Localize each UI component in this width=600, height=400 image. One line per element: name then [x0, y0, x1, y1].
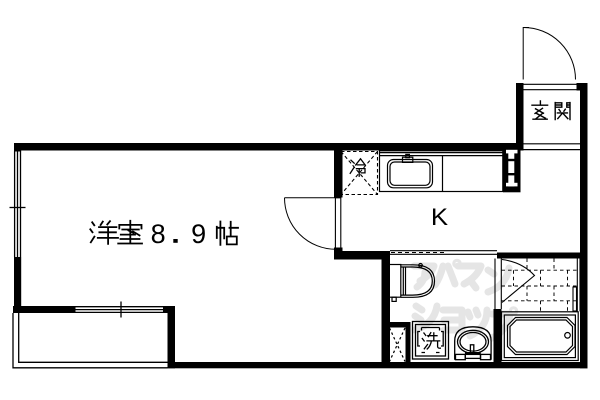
- svg-text:K: K: [431, 204, 448, 231]
- svg-text:8: 8: [151, 219, 166, 249]
- svg-text:9: 9: [191, 219, 206, 249]
